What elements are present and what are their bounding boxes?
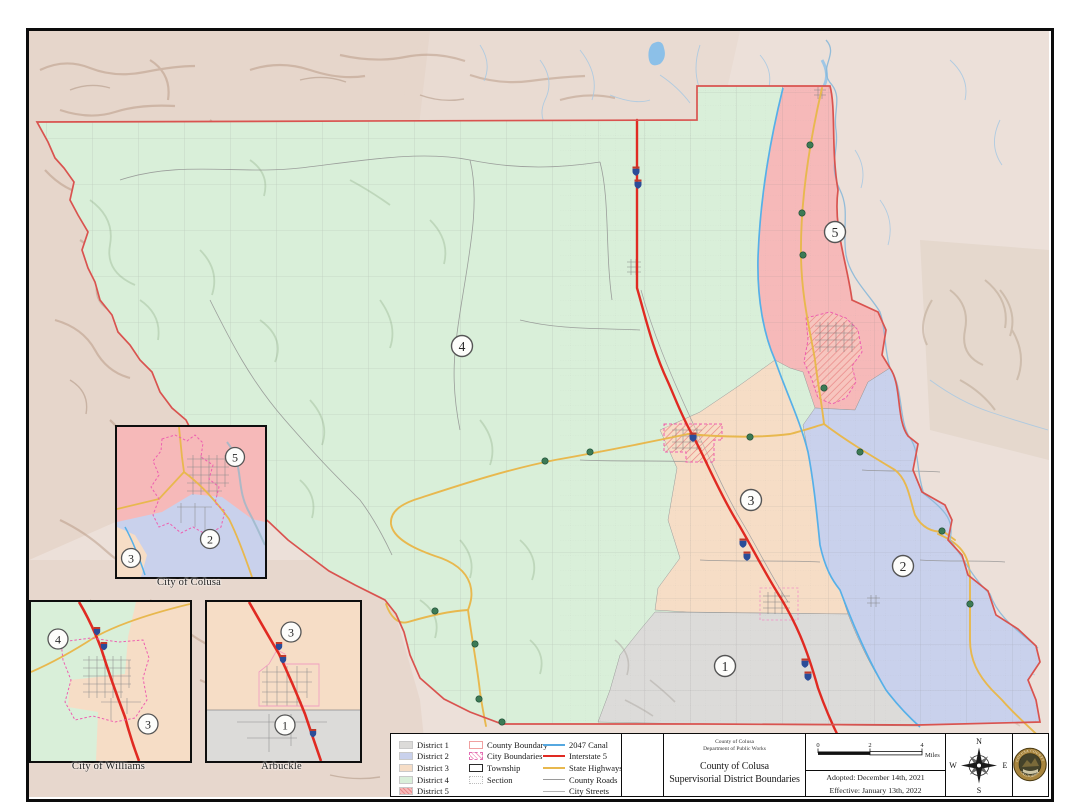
district-5-marker: 5 (825, 222, 846, 243)
inset-city-of-colusa: 5 2 3 (115, 425, 267, 579)
svg-text:4: 4 (55, 632, 61, 646)
svg-text:4: 4 (459, 339, 466, 354)
district-5-swatch (399, 787, 413, 795)
legend-box: District 1 District 2 District 3 Distric… (390, 733, 622, 797)
map-title: County of Colusa Supervisorial District … (664, 760, 805, 787)
district-4-swatch (399, 776, 413, 784)
svg-text:5: 5 (832, 225, 839, 240)
svg-text:Miles: Miles (925, 752, 940, 759)
county-road-line-swatch (543, 779, 565, 780)
svg-text:S: S (976, 786, 980, 795)
dates-box: Adopted: December 14th, 2021 Effective: … (805, 770, 946, 798)
district-1-marker: 1 (715, 656, 736, 677)
legend-item-district-1: District 1 (399, 739, 449, 751)
scale-bar-box: 0 2 4 Miles (805, 733, 946, 771)
scale-bar: 0 2 4 Miles (806, 734, 944, 768)
legend-item-section: Section (469, 774, 548, 786)
svg-text:3: 3 (288, 625, 294, 639)
district-3-marker: 3 (741, 490, 762, 511)
map-page: 4 5 3 2 1 5 2 3 (0, 0, 1080, 810)
legend-item-city-boundaries: City Boundaries (469, 751, 548, 763)
inset-label-colusa: City of Colusa (115, 577, 263, 588)
svg-text:5: 5 (232, 450, 238, 464)
legend-item-interstate-5: Interstate 5 (543, 751, 623, 763)
effective-date: Effective: January 13th, 2022 (806, 785, 945, 797)
legend-item-county-roads: County Roads (543, 774, 623, 786)
svg-text:4: 4 (920, 742, 924, 749)
svg-text:3: 3 (748, 493, 755, 508)
title-block: County of Colusa Department of Public Wo… (663, 733, 806, 797)
svg-text:3: 3 (145, 717, 151, 731)
interstate-line-swatch (543, 755, 565, 757)
county-seal-icon: COLUSA COUNTY CALIFORNIA (1013, 734, 1047, 795)
section-swatch (469, 776, 483, 784)
district-2-swatch (399, 752, 413, 760)
agency-name: County of Colusa Department of Public Wo… (664, 739, 805, 753)
svg-text:2: 2 (900, 559, 907, 574)
svg-text:E: E (1002, 761, 1007, 770)
district-1-swatch (399, 741, 413, 749)
legend-item-city-streets: City Streets (543, 785, 623, 797)
inset-city-of-williams: 4 3 (29, 600, 192, 763)
legend-item-township: Township (469, 762, 548, 774)
compass-rose-icon: N E S W (946, 734, 1012, 795)
svg-text:W: W (949, 761, 957, 770)
district-3-swatch (399, 764, 413, 772)
spacer-box (621, 733, 665, 797)
legend-item-district-5: District 5 (399, 785, 449, 797)
district-4-marker: 4 (452, 336, 473, 357)
svg-text:1: 1 (282, 718, 288, 732)
adopted-date: Adopted: December 14th, 2021 (806, 772, 945, 784)
legend-item-district-4: District 4 (399, 774, 449, 786)
city-street-line-swatch (543, 791, 565, 792)
state-highway-line-swatch (543, 767, 565, 769)
township-swatch (469, 764, 483, 772)
legend-item-district-2: District 2 (399, 751, 449, 763)
city-boundaries-swatch (469, 752, 483, 760)
svg-text:1: 1 (722, 659, 729, 674)
district-2-marker: 2 (893, 556, 914, 577)
canal-line-swatch (543, 744, 565, 746)
svg-text:2: 2 (868, 742, 871, 749)
svg-text:2: 2 (207, 532, 213, 546)
svg-text:N: N (976, 737, 982, 746)
compass-box: N E S W (945, 733, 1014, 797)
seal-box: COLUSA COUNTY CALIFORNIA (1012, 733, 1050, 797)
svg-text:3: 3 (128, 551, 134, 565)
legend-item-state-highways: State Highways (543, 762, 623, 774)
county-boundary-swatch (469, 741, 483, 749)
legend-item-canal: 2047 Canal (543, 739, 623, 751)
legend-item-district-3: District 3 (399, 762, 449, 774)
inset-label-williams: City of Williams (29, 761, 188, 772)
svg-text:0: 0 (816, 742, 819, 749)
inset-label-arbuckle: Arbuckle (205, 761, 358, 772)
inset-arbuckle: 3 1 (205, 600, 362, 763)
legend-item-county-boundary: County Boundary (469, 739, 548, 751)
